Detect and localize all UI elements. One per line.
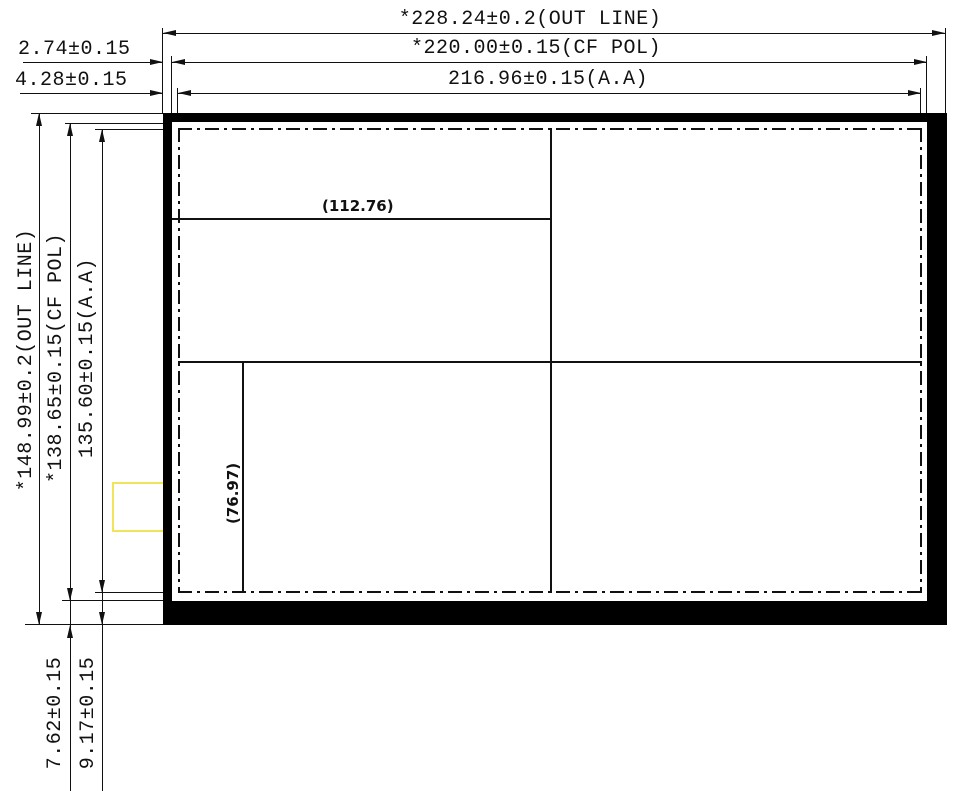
arrowhead bbox=[36, 612, 42, 625]
extension-line-aa-bottom bbox=[95, 592, 163, 593]
dim-line-aa-width bbox=[178, 93, 921, 94]
dimension-label-cfpol-height: *138.65±0.15(CF POL) bbox=[46, 208, 68, 508]
dimension-label-aa-bottom-offset: 9.17±0.15 bbox=[78, 653, 100, 773]
extension-line-outline-top bbox=[31, 113, 163, 114]
dimension-label-aa-height: 135.60±0.15(A.A) bbox=[77, 208, 99, 508]
arrowhead bbox=[67, 123, 73, 136]
leader-cfpol-left-offset bbox=[23, 62, 163, 63]
extension-line-outline-right bbox=[945, 28, 946, 113]
center-line-horizontal bbox=[178, 361, 922, 363]
arrowhead bbox=[914, 59, 927, 65]
arrowhead bbox=[150, 59, 163, 65]
arrowhead bbox=[99, 129, 105, 142]
arrowhead bbox=[172, 59, 185, 65]
arrowhead bbox=[178, 90, 191, 96]
extension-line-outline-bottom bbox=[25, 624, 163, 625]
engineering-drawing: (112.76) (76.97) *228.24±0.2(OUT LINE) *… bbox=[0, 0, 955, 791]
dim-line-outline-height bbox=[39, 113, 40, 625]
ref-line-center-y bbox=[242, 362, 244, 593]
dimension-label-aa-width: 216.96±0.15(A.A) bbox=[398, 69, 698, 91]
arrowhead bbox=[99, 612, 105, 625]
arrowhead bbox=[36, 113, 42, 126]
arrowhead bbox=[99, 580, 105, 593]
dimension-label-cfpol-bottom-offset: 7.62±0.15 bbox=[45, 653, 67, 773]
leader-aa-left-offset bbox=[20, 93, 163, 94]
ref-dimension-center-y-label: (76.97) bbox=[224, 464, 242, 524]
dim-line-aa-height bbox=[102, 129, 103, 593]
dimension-label-outline-height: *148.99±0.2(OUT LINE) bbox=[16, 210, 38, 510]
dim-line-cfpol-width bbox=[172, 62, 927, 63]
arrowhead bbox=[67, 625, 73, 638]
dimension-label-outline-width: *228.24±0.2(OUT LINE) bbox=[380, 9, 680, 31]
extension-line-aa-top bbox=[95, 129, 163, 130]
ref-line-center-x bbox=[172, 218, 551, 220]
extension-line-cfpol-top bbox=[65, 123, 163, 124]
arrowhead bbox=[932, 30, 945, 36]
dim-line-cfpol-height bbox=[70, 123, 71, 601]
dimension-label-aa-left-offset: 4.28±0.15 bbox=[15, 70, 127, 92]
ref-dimension-center-x-label: (112.76) bbox=[322, 197, 392, 215]
arrowhead bbox=[163, 30, 176, 36]
dim-line-outline-width bbox=[163, 33, 945, 34]
arrowhead bbox=[150, 90, 163, 96]
dimension-label-cfpol-width: *220.00±0.15(CF POL) bbox=[386, 38, 686, 60]
arrowhead bbox=[908, 90, 921, 96]
extension-line-outline-left bbox=[162, 28, 163, 113]
arrowhead bbox=[67, 588, 73, 601]
extension-line-cfpol-bottom bbox=[62, 600, 163, 601]
dimension-label-cfpol-left-offset: 2.74±0.15 bbox=[18, 39, 130, 61]
